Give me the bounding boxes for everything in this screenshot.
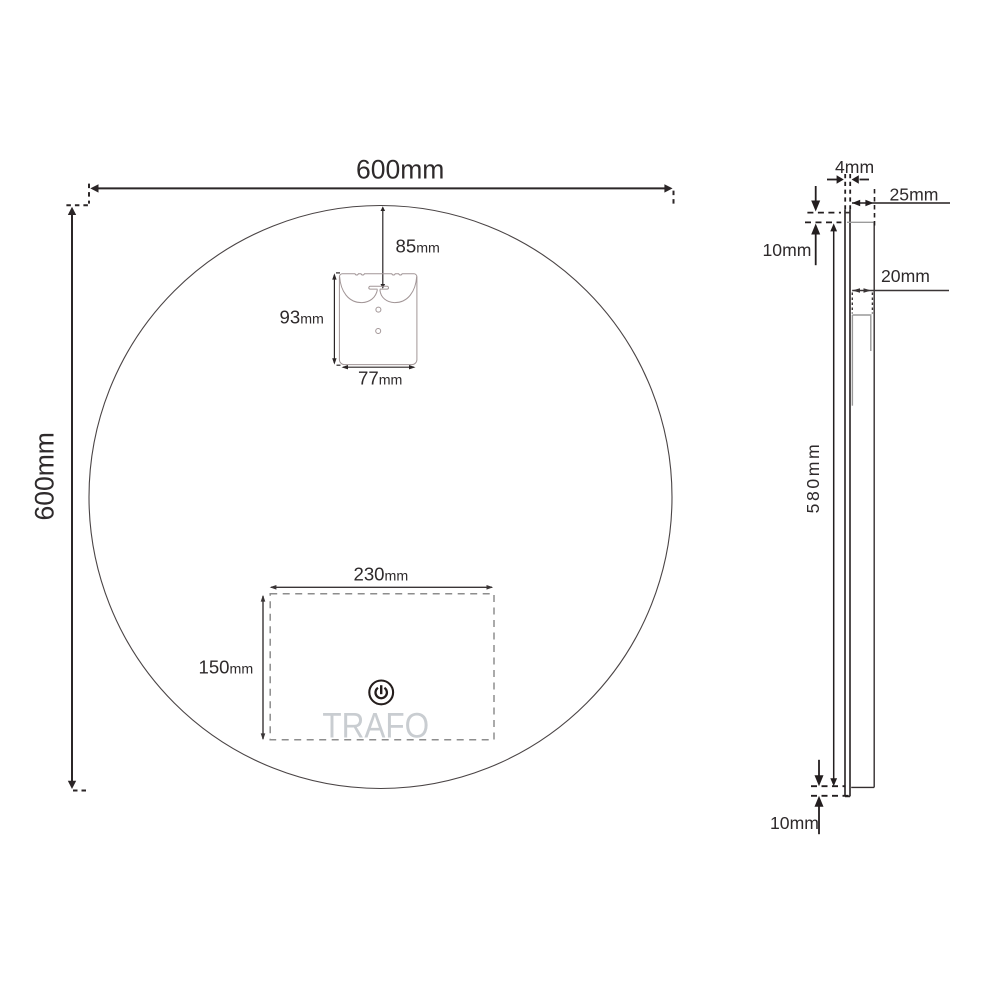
svg-text:600mm: 600mm	[30, 432, 60, 520]
svg-text:20mm: 20mm	[881, 266, 930, 286]
svg-text:TRAFO: TRAFO	[322, 707, 429, 746]
svg-text:600mm: 600mm	[356, 155, 444, 185]
svg-text:4mm: 4mm	[835, 157, 874, 177]
svg-text:25mm: 25mm	[890, 185, 939, 205]
svg-text:10mm: 10mm	[763, 240, 812, 260]
svg-text:10mm: 10mm	[770, 813, 819, 833]
svg-text:580mm: 580mm	[803, 442, 823, 514]
